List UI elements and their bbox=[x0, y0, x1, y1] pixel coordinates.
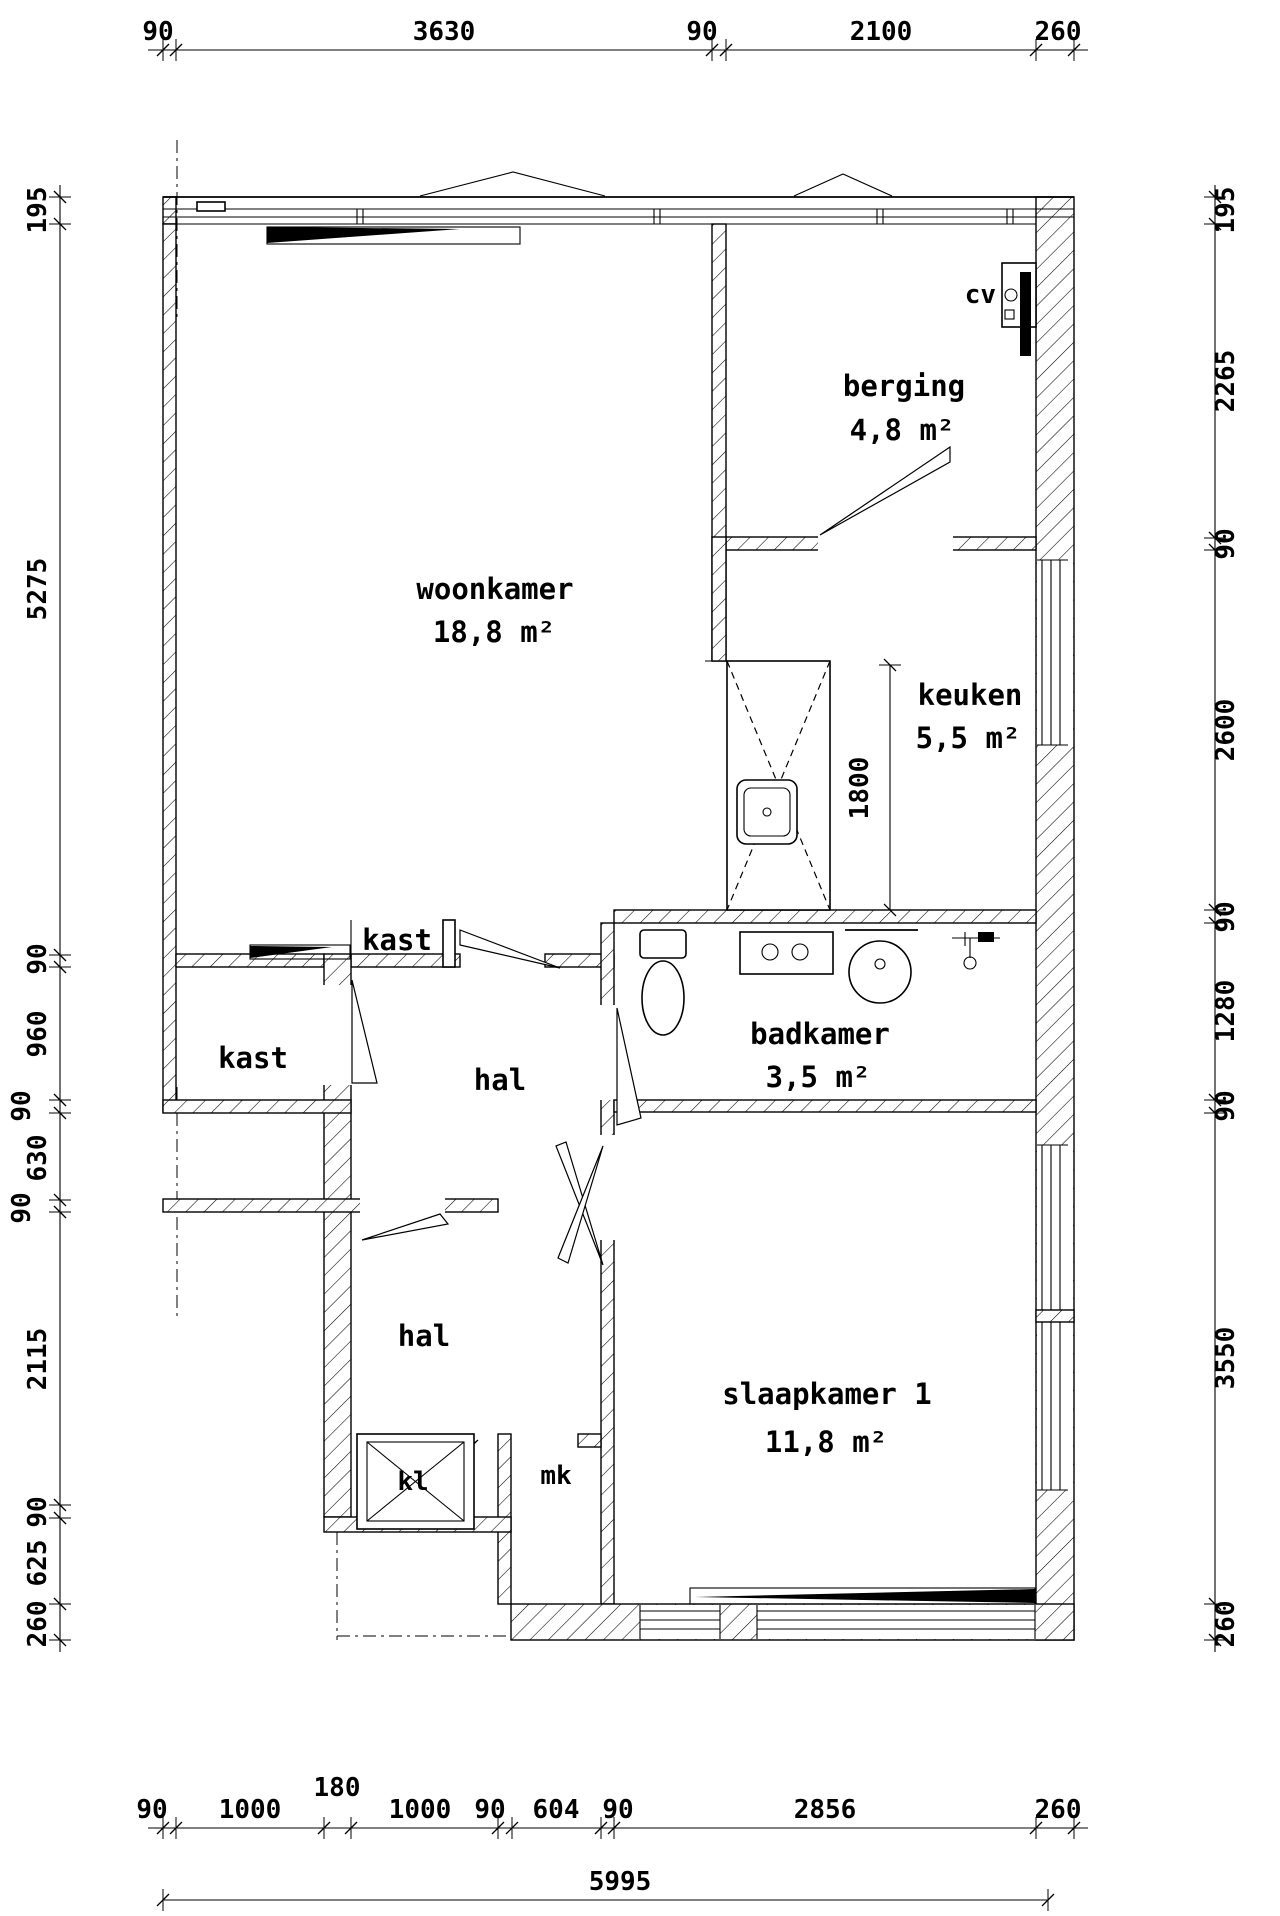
kitchen-counter bbox=[727, 661, 830, 910]
dimension-chain-left: 195 5275 90 960 90 630 90 2115 90 625 26… bbox=[7, 185, 71, 1652]
dim-top-3: 2100 bbox=[850, 17, 913, 47]
label-berging-area: 4,8 m² bbox=[850, 413, 955, 447]
label-keuken-area: 5,5 m² bbox=[916, 721, 1021, 755]
dimension-chain-top: 90 3630 90 2100 260 bbox=[142, 17, 1088, 61]
dim-left-1: 5275 bbox=[23, 558, 53, 621]
dim-keuken-opening: 1800 bbox=[845, 659, 901, 916]
label-berging: berging bbox=[843, 369, 965, 403]
dim-right-5: 1280 bbox=[1211, 980, 1241, 1043]
window-mullion-box bbox=[197, 202, 225, 211]
dimension-chain-right: 195 2265 90 2600 90 1280 90 3550 260 bbox=[1204, 185, 1241, 1652]
label-kl: kl bbox=[397, 1467, 428, 1497]
door-badkamer bbox=[617, 1008, 641, 1125]
dim-right-0: 195 bbox=[1211, 187, 1241, 234]
dim-bottom-3: 1000 bbox=[389, 1795, 452, 1825]
dim-top-2: 90 bbox=[686, 17, 717, 47]
wall-badkamer-bottom bbox=[614, 1100, 1036, 1112]
door-woonkamer-hal bbox=[460, 930, 560, 968]
dim-bottom-6: 90 bbox=[602, 1795, 633, 1825]
label-mk: mk bbox=[540, 1461, 572, 1491]
window-keuken bbox=[1037, 560, 1073, 745]
wall-kast-bottom bbox=[163, 1100, 351, 1113]
dim-bottom-8: 260 bbox=[1035, 1795, 1082, 1825]
faucet-symbols bbox=[952, 932, 1000, 969]
dim-top-4: 260 bbox=[1035, 17, 1082, 47]
floor-plan-drawing: 90 3630 90 2100 260 195 5275 90 960 90 6… bbox=[0, 0, 1280, 1916]
label-woonkamer: woonkamer bbox=[416, 572, 573, 606]
dim-bottom-total: 5995 bbox=[589, 1867, 652, 1897]
dim-bottom-4: 90 bbox=[474, 1795, 505, 1825]
dim-right-6: 90 bbox=[1211, 1090, 1241, 1121]
label-slaapkamer: slaapkamer 1 bbox=[722, 1377, 932, 1411]
door-kast-links bbox=[352, 980, 377, 1083]
label-keuken: keuken bbox=[918, 678, 1023, 712]
label-kast-boven: kast bbox=[362, 923, 432, 957]
door-berging bbox=[820, 447, 950, 535]
toilet bbox=[640, 930, 686, 1035]
dim-top-0: 90 bbox=[142, 17, 173, 47]
dim-left-9: 625 bbox=[23, 1540, 53, 1587]
dim-right-2: 90 bbox=[1211, 528, 1241, 559]
label-hal-onder: hal bbox=[398, 1319, 450, 1353]
window-slaapkamer-bottom bbox=[640, 1605, 1035, 1639]
dim-left-5: 630 bbox=[23, 1135, 53, 1182]
wall-entry bbox=[163, 1199, 498, 1212]
dim-right-8: 260 bbox=[1211, 1601, 1241, 1648]
wall-keuken-left bbox=[712, 537, 726, 661]
label-cv: cv bbox=[965, 280, 996, 310]
dim-bottom-5: 604 bbox=[533, 1795, 580, 1825]
door-entry bbox=[362, 1214, 448, 1240]
fixtures: 1800 bbox=[357, 263, 1036, 1529]
dim-bottom-2: 180 bbox=[314, 1773, 361, 1803]
dim-left-7: 2115 bbox=[23, 1328, 53, 1391]
wall-left-exterior bbox=[163, 224, 176, 1112]
dim-left-6: 90 bbox=[7, 1192, 37, 1223]
dim-keuken-opening-label: 1800 bbox=[845, 757, 875, 820]
wall-mk-top-stub bbox=[578, 1434, 601, 1447]
pivot-window-icon-1 bbox=[420, 172, 605, 196]
dim-right-7: 3550 bbox=[1211, 1327, 1241, 1390]
round-basin bbox=[845, 930, 918, 1003]
label-hal-boven: hal bbox=[474, 1063, 526, 1097]
dimension-chain-bottom: 90 1000 180 1000 90 604 90 2856 260 5995 bbox=[136, 1773, 1088, 1911]
wall-badkamer-top bbox=[614, 910, 1036, 923]
label-badkamer: badkamer bbox=[750, 1017, 890, 1051]
pivot-window-icon-2 bbox=[794, 174, 892, 196]
blind-woonkamer bbox=[267, 227, 520, 244]
dim-left-2: 90 bbox=[23, 943, 53, 974]
dim-top-1: 3630 bbox=[413, 17, 476, 47]
label-slaapkamer-area: 11,8 m² bbox=[765, 1425, 887, 1459]
dim-right-3: 2600 bbox=[1211, 699, 1241, 762]
dim-right-1: 2265 bbox=[1211, 350, 1241, 413]
label-kast-links: kast bbox=[218, 1041, 288, 1075]
washbasin-counter bbox=[740, 932, 833, 974]
dim-left-8: 90 bbox=[23, 1496, 53, 1527]
cv-unit bbox=[1002, 263, 1036, 356]
blind-slaapkamer bbox=[690, 1588, 1035, 1604]
wall-kast-jamb bbox=[443, 920, 455, 967]
dim-right-4: 90 bbox=[1211, 901, 1241, 932]
window-slaapkamer-right bbox=[1036, 1145, 1074, 1490]
label-woonkamer-area: 18,8 m² bbox=[433, 615, 555, 649]
dim-left-0: 195 bbox=[23, 187, 53, 234]
dim-left-3: 960 bbox=[23, 1011, 53, 1058]
dim-bottom-1: 1000 bbox=[219, 1795, 282, 1825]
dim-left-10: 260 bbox=[23, 1601, 53, 1648]
label-badkamer-area: 3,5 m² bbox=[766, 1060, 871, 1094]
dim-bottom-0: 90 bbox=[136, 1795, 167, 1825]
dim-bottom-7: 2856 bbox=[794, 1795, 857, 1825]
wall-top-left-pier bbox=[163, 197, 176, 224]
dim-left-4: 90 bbox=[7, 1090, 37, 1121]
